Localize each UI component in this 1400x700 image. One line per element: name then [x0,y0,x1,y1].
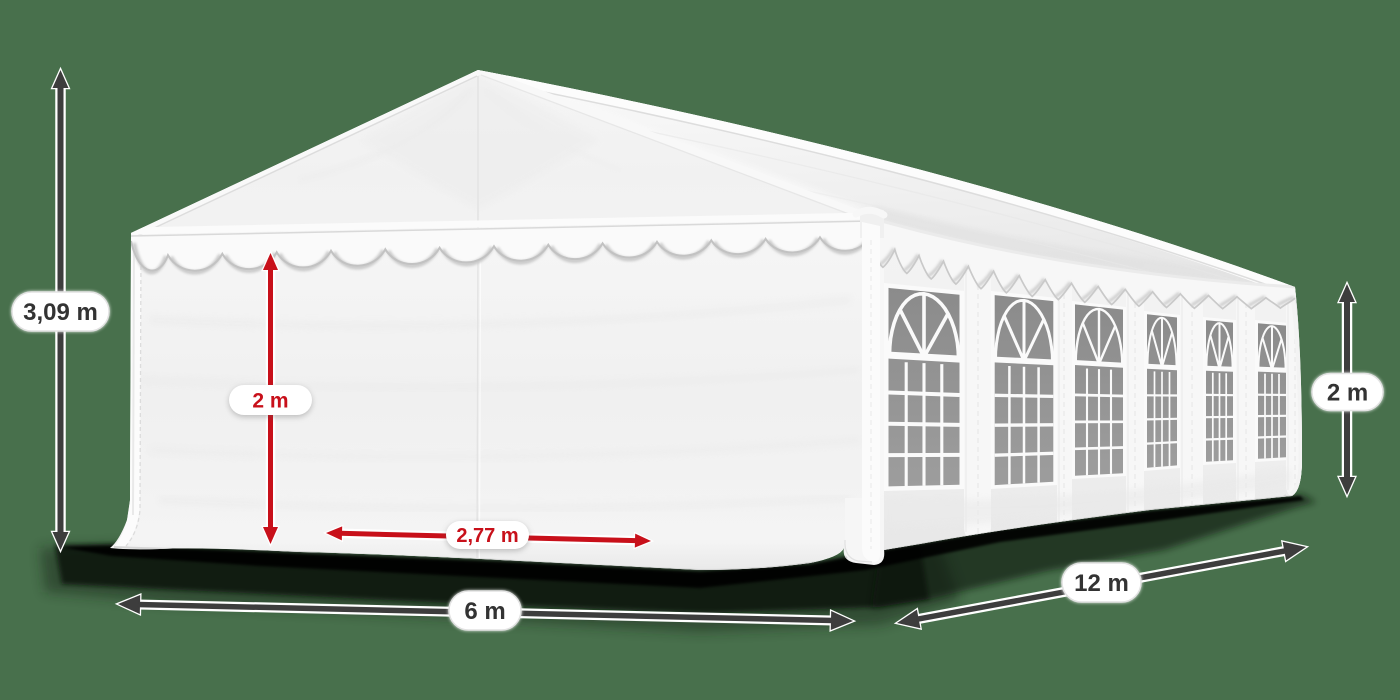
svg-text:2,77 m: 2,77 m [456,525,518,547]
svg-text:3,09 m: 3,09 m [23,299,98,326]
svg-text:12 m: 12 m [1074,570,1129,597]
svg-text:2 m: 2 m [1327,380,1368,407]
svg-text:2 m: 2 m [252,390,288,413]
svg-text:6 m: 6 m [464,598,505,625]
